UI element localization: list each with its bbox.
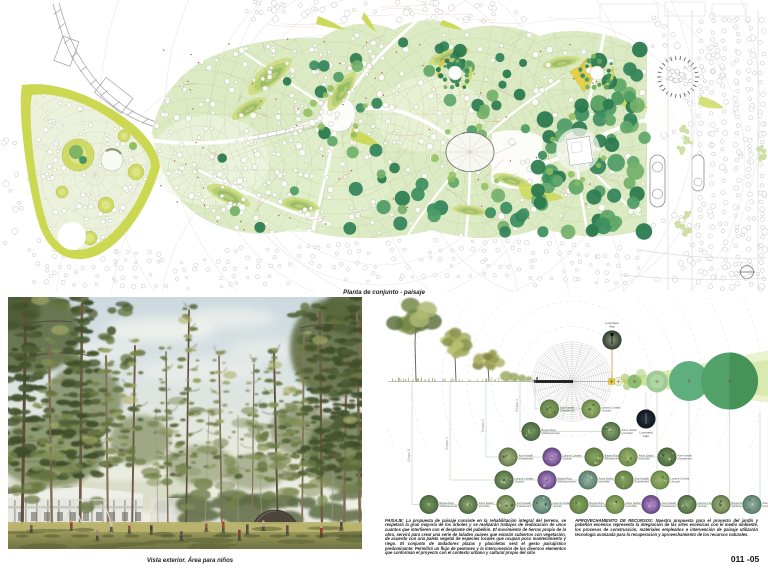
svg-text:(Kawalensis): (Kawalensis) [635,480,650,484]
svg-text:(encinilla): (encinilla) [479,504,490,508]
svg-text:(Jicaral): (Jicaral) [602,409,611,413]
svg-text:(Kawalensis): (Kawalensis) [519,457,534,461]
svg-text:(encinilla): (encinilla) [622,431,633,435]
svg-text:(Multicamensis): (Multicamensis) [440,504,458,508]
svg-text:(Jicaral): (Jicaral) [671,480,680,484]
svg-text:(Jicaral): (Jicaral) [563,457,572,461]
svg-text:Grupo 4: Grupo 4 [445,437,449,450]
svg-text:(Kawalensis): (Kawalensis) [662,504,677,508]
svg-text:Planta de conjunto - paisaje: Planta de conjunto - paisaje [343,289,425,296]
svg-text:Vista exterior. Área para niño: Vista exterior. Área para niños [147,557,234,564]
svg-text:(Jicaral): (Jicaral) [515,480,524,484]
svg-text:Alta: Alta [609,325,615,329]
svg-text:Grupo 5: Grupo 5 [407,449,411,462]
svg-text:(encinilla): (encinilla) [599,480,610,484]
svg-text:(Multicamensis): (Multicamensis) [542,431,560,435]
svg-text:(encinilla): (encinilla) [626,504,637,508]
svg-text:(encinilla): (encinilla) [763,504,768,508]
svg-text:Grupo 1: Grupo 1 [515,399,519,412]
svg-text:(Multicamensis): (Multicamensis) [558,480,576,484]
svg-text:baja: baja [643,434,649,438]
svg-text:(Multicamensis): (Multicamensis) [590,504,608,508]
svg-text:Grupo 2: Grupo 2 [481,419,485,432]
svg-text:(encinilla): (encinilla) [639,457,650,461]
svg-text:(Kawalensis): (Kawalensis) [517,504,532,508]
svg-text:(Kawalensis): (Kawalensis) [560,409,575,413]
svg-text:(Jicaral): (Jicaral) [698,504,707,508]
svg-text:(Kawalensis): (Kawalensis) [678,457,693,461]
svg-text:011 -05: 011 -05 [731,554,760,564]
svg-text:(Jicaral): (Jicaral) [553,504,562,508]
